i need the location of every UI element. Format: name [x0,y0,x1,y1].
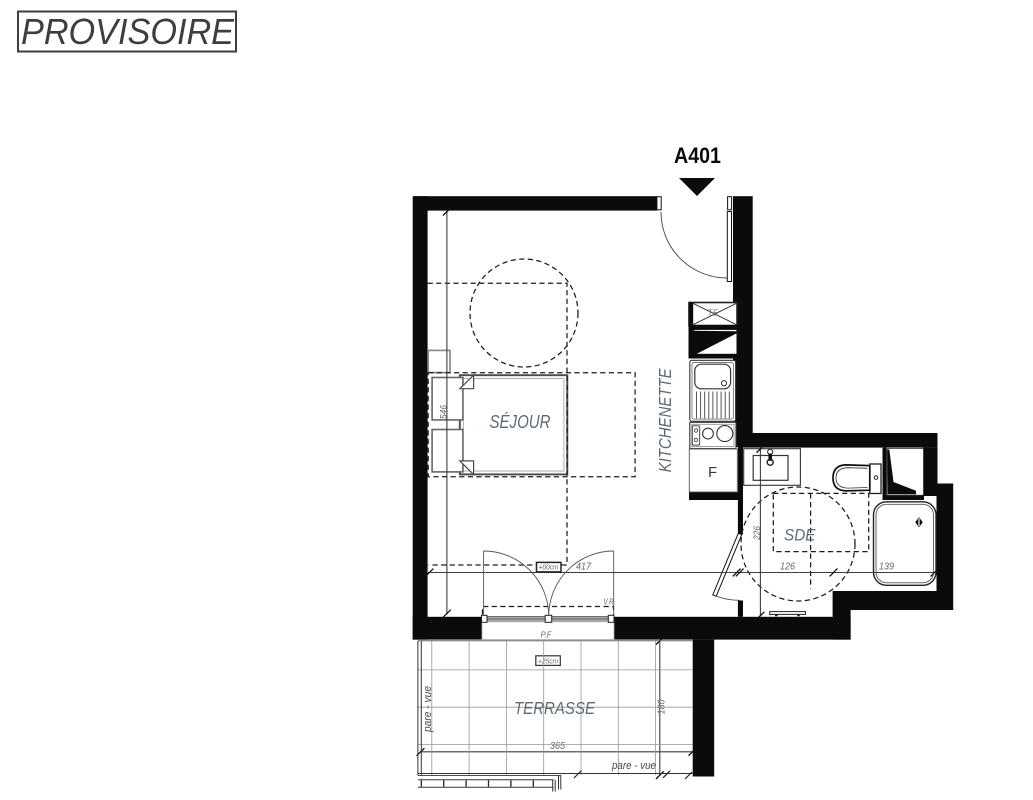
svg-text:546: 546 [439,405,449,419]
svg-text:TE: TE [708,309,720,318]
svg-text:+25cm: +25cm [538,656,558,665]
svg-text:pare - vue: pare - vue [422,686,434,733]
svg-text:A401: A401 [674,143,721,168]
svg-text:365: 365 [550,741,565,752]
svg-text:KITCHENETTE: KITCHENETTE [655,368,675,472]
svg-text:SDE: SDE [784,527,816,545]
svg-text:PROVISOIRE: PROVISOIRE [21,11,235,52]
svg-text:139: 139 [879,562,894,573]
svg-text:TERRASSE: TERRASSE [514,698,595,718]
svg-text:V.R: V.R [604,597,614,607]
svg-text:226: 226 [752,526,762,541]
svg-text:SÉJOUR: SÉJOUR [490,412,551,432]
svg-text:417: 417 [576,562,591,573]
svg-text:+00cm: +00cm [539,563,559,572]
svg-text:P.F: P.F [541,630,553,640]
svg-text:pare - vue: pare - vue [611,760,656,772]
svg-text:F: F [708,464,717,481]
svg-text:126: 126 [780,562,795,573]
